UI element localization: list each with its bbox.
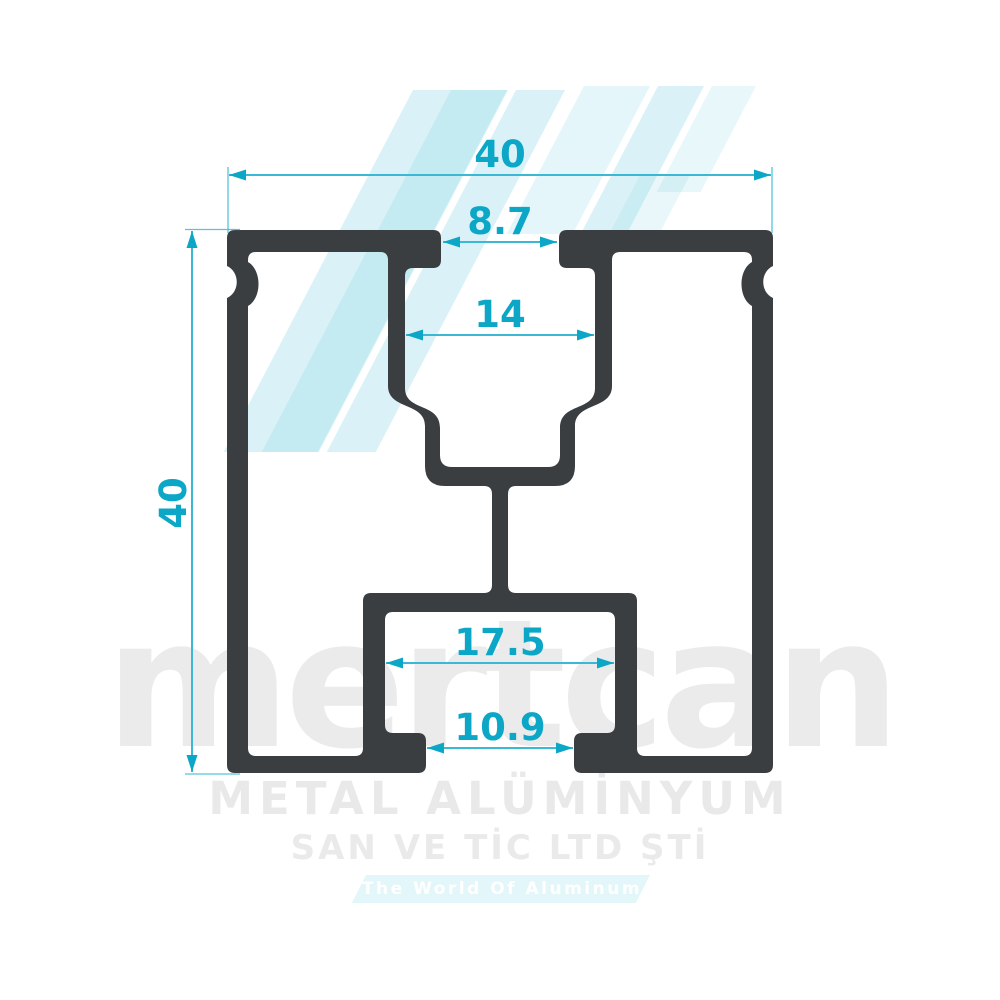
dim-box-inner-width: 17.5 <box>386 621 614 669</box>
dim-bottom-opening: 10.9 <box>427 706 573 754</box>
dim-label-overall-height: 40 <box>152 477 195 529</box>
arrowhead-down-icon <box>187 755 198 772</box>
arrowhead-left-icon <box>427 743 444 754</box>
arrowhead-right-icon <box>556 743 573 754</box>
dim-slot-inner-width: 14 <box>406 293 594 341</box>
dim-label-bottom-opening: 10.9 <box>454 706 545 749</box>
dim-slot-opening: 8.7 <box>443 200 557 248</box>
arrowhead-left-icon <box>229 170 246 181</box>
dim-label-slot-inner-width: 14 <box>474 293 526 336</box>
arrowhead-left-icon <box>406 330 423 341</box>
dim-overall-height: 40 <box>152 230 240 775</box>
dim-label-slot-opening: 8.7 <box>467 200 533 243</box>
technical-drawing-canvas: mertcan METAL ALÜMİNYUM SAN VE TİC LTD Ş… <box>0 0 1000 1000</box>
arrowhead-right-icon <box>577 330 594 341</box>
arrowhead-left-icon <box>386 658 403 669</box>
arrowhead-right-icon <box>597 658 614 669</box>
profile-drawing: 40 8.7 14 40 1 <box>0 0 1000 1000</box>
arrowhead-right-icon <box>754 170 771 181</box>
arrowhead-left-icon <box>443 237 460 248</box>
arrowhead-right-icon <box>540 237 557 248</box>
dim-label-overall-width: 40 <box>474 133 526 176</box>
dim-label-box-inner-width: 17.5 <box>454 621 545 664</box>
arrowhead-up-icon <box>187 231 198 248</box>
